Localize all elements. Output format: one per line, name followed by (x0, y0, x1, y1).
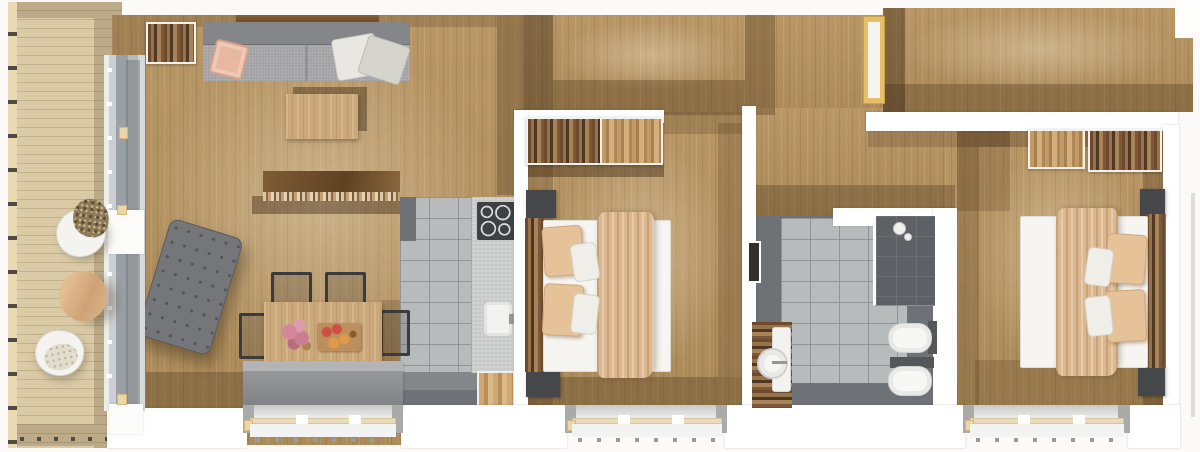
wall-south-bathroom (725, 405, 965, 448)
kitchen-cabinet (477, 371, 515, 407)
floor-plan (0, 0, 1200, 452)
wardrobe-2-right (1088, 129, 1162, 172)
terrace-door-panel-1 (108, 210, 144, 254)
bed1-nightstand-bottom (526, 368, 560, 397)
window-1-sill (254, 405, 392, 419)
entry-shadow-west (883, 8, 905, 112)
wardrobe-1-right (600, 117, 663, 165)
kitchen-island-top (263, 171, 400, 192)
hall-shadow-east (745, 15, 775, 115)
terrace-table (59, 271, 107, 321)
bidet (888, 323, 932, 353)
dining-chair-3 (239, 313, 267, 359)
window-2-sill (576, 405, 716, 419)
bed2-pillow-4 (1084, 295, 1114, 337)
terrace-door-handle-1 (119, 127, 128, 139)
terrace-door-panel-2 (109, 404, 143, 434)
entrance-door (868, 22, 880, 98)
bedroom-1-door-shadow (664, 112, 743, 134)
flower-bouquet (278, 316, 316, 356)
kitchen-floor-dark-nw (400, 197, 416, 241)
window-3-lower (970, 424, 1124, 437)
wardrobe-2-left (1028, 129, 1085, 169)
terrace-deck-edge (8, 2, 17, 448)
bed2-pillow-3 (1083, 246, 1114, 287)
bed1-pillow-3 (569, 241, 600, 282)
entry-shadow-south (883, 84, 1193, 112)
entry-room-notch (1175, 0, 1200, 38)
bed1-pillow-4 (570, 293, 600, 335)
window-2-lower (572, 424, 722, 437)
sideboard (146, 22, 196, 64)
terrace-door-handle-2 (117, 205, 127, 215)
wall-south-bedroom2-east (1128, 405, 1180, 448)
toilet (888, 366, 932, 396)
dining-chair-1 (271, 272, 312, 305)
terrace-deck-dashes (20, 437, 120, 441)
bathroom-radiator (747, 241, 761, 283)
bed2-nightstand-bottom (1138, 366, 1165, 396)
bedroom-1-shadow-east (718, 123, 743, 377)
window-1-lower (250, 424, 396, 437)
dining-chair-2 (325, 272, 366, 305)
bed1-blanket (597, 212, 654, 378)
boundary-line-east (1191, 193, 1195, 417)
wall-bathroom-east (933, 208, 957, 415)
dining-chair-4 (380, 310, 410, 356)
terrace-door-handle-3 (117, 394, 127, 405)
bed2-headboard (1146, 214, 1166, 368)
hall-shadow-west (523, 15, 553, 115)
bathroom-faucet (772, 361, 787, 364)
wardrobe-1-shadow (527, 163, 664, 177)
terrace-shadow-top (17, 2, 94, 18)
wall-south-kitchen (401, 405, 567, 448)
window-2-dots (578, 438, 716, 442)
window-1-dots (256, 438, 390, 442)
shower-head (893, 222, 906, 235)
cooktop (477, 202, 515, 240)
bed2-nightstand-top (1140, 189, 1165, 217)
window-bench (243, 361, 403, 407)
entry-room-highlight (905, 10, 1175, 90)
wardrobe-1-left (526, 117, 602, 165)
bed1-nightstand-top (526, 190, 556, 218)
serving-board (317, 323, 361, 351)
shower-hose (904, 233, 912, 241)
window-3-sill (974, 405, 1118, 419)
terrace-shadow-bottom (17, 424, 94, 446)
kitchen-island-front (263, 192, 400, 201)
coffee-table (286, 94, 358, 139)
window-3-dots (976, 438, 1118, 442)
